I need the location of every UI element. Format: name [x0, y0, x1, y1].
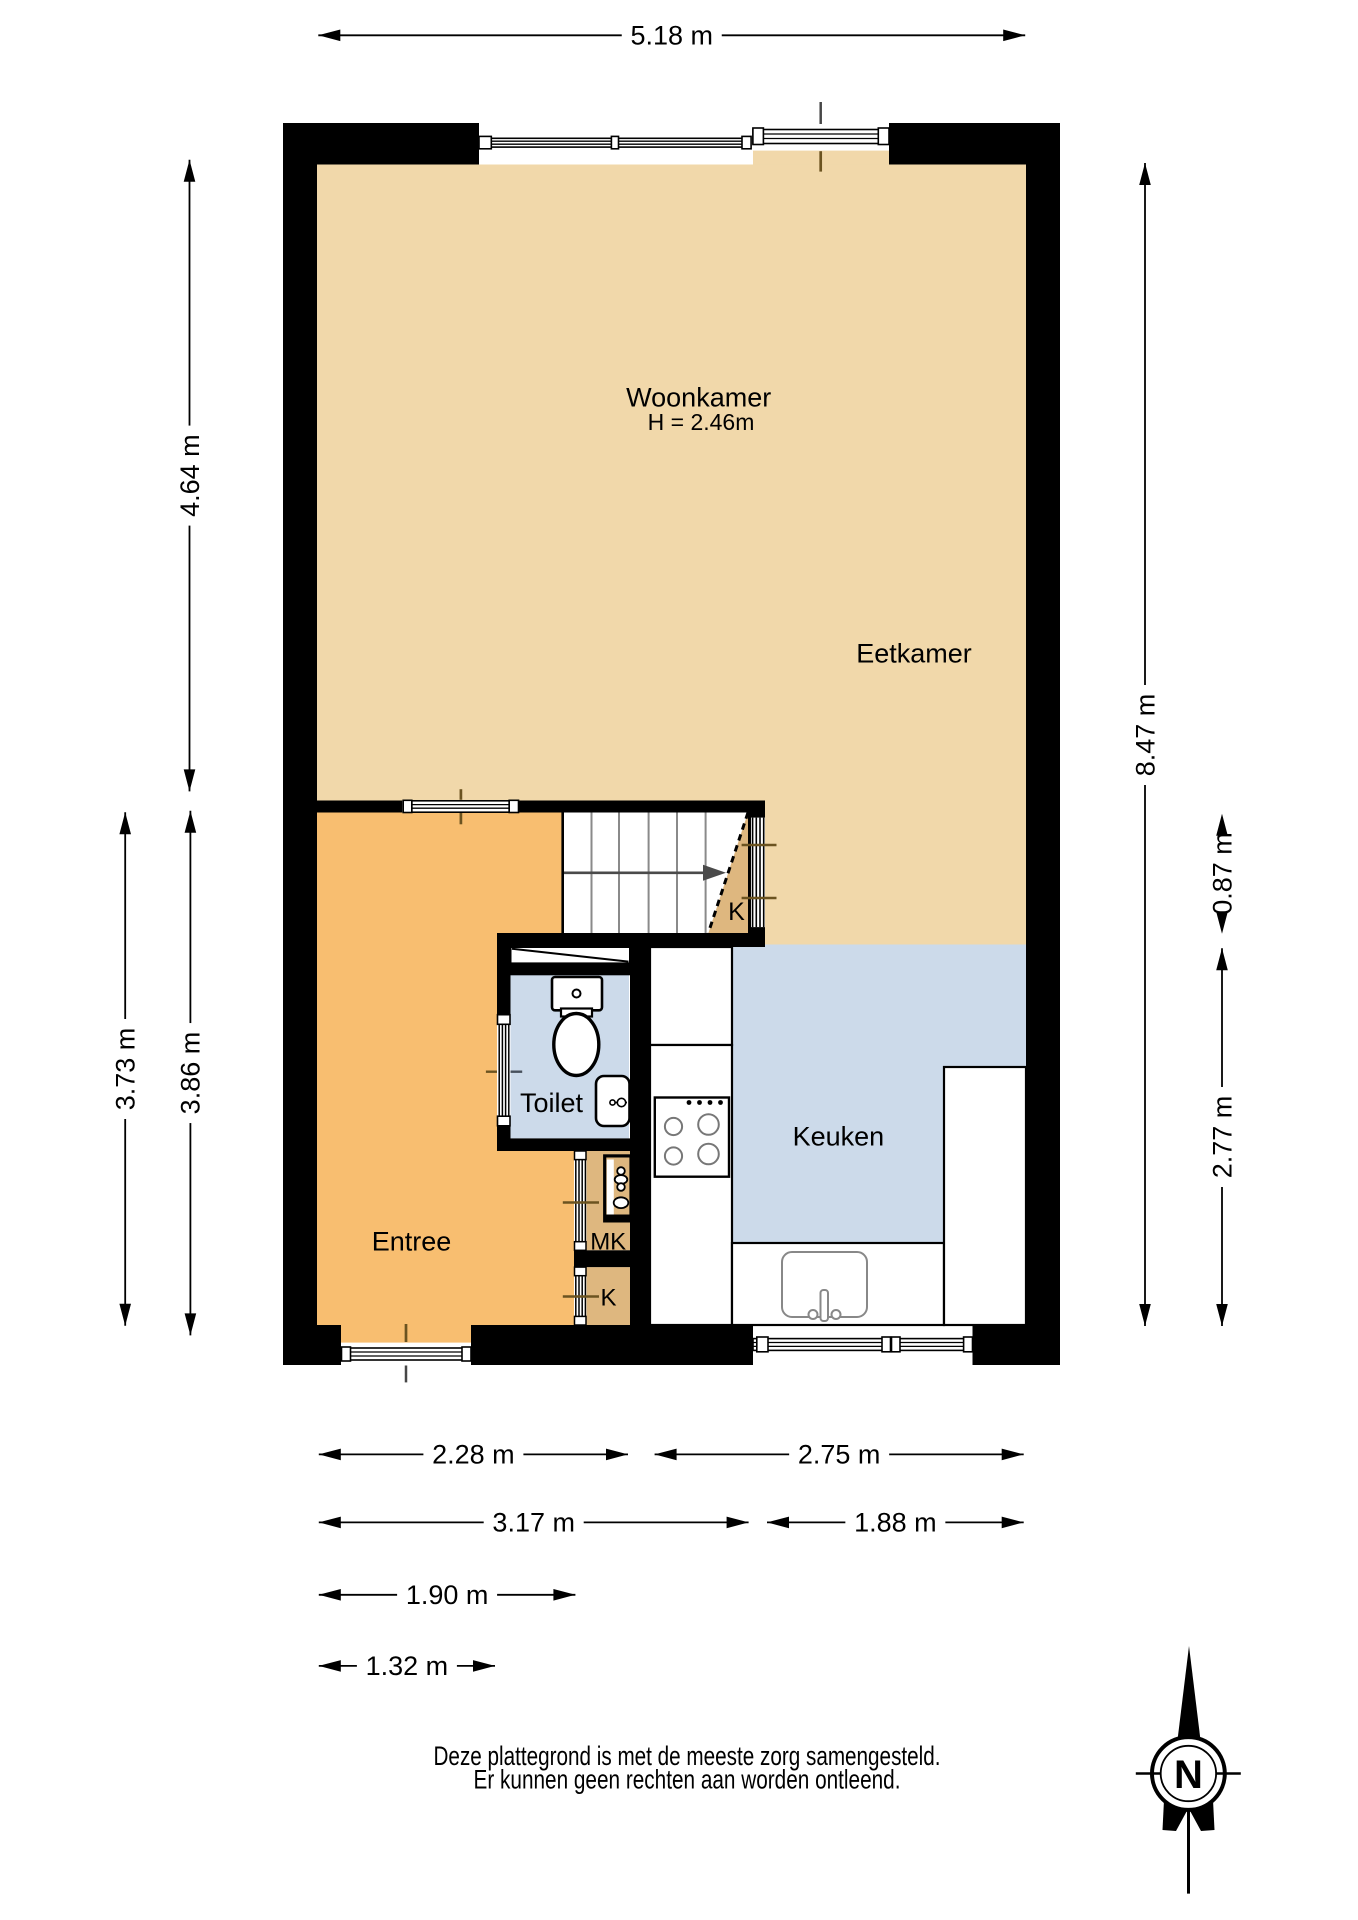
svg-text:3.73 m: 3.73 m [111, 1028, 141, 1111]
svg-text:Woonkamer: Woonkamer [626, 382, 771, 412]
svg-text:N: N [1174, 1753, 1203, 1797]
svg-text:K: K [728, 898, 745, 926]
svg-text:8.47 m: 8.47 m [1130, 694, 1160, 777]
svg-text:Toilet: Toilet [520, 1088, 584, 1118]
svg-text:Er kunnen geen rechten aan wor: Er kunnen geen rechten aan worden ontlee… [474, 1765, 901, 1795]
svg-text:Keuken: Keuken [793, 1121, 885, 1151]
svg-text:Entree: Entree [372, 1227, 452, 1257]
svg-text:MK: MK [590, 1229, 626, 1256]
svg-text:3.86 m: 3.86 m [176, 1032, 206, 1115]
svg-text:H = 2.46m: H = 2.46m [648, 409, 755, 435]
svg-text:Eetkamer: Eetkamer [856, 639, 972, 669]
svg-text:1.88 m: 1.88 m [854, 1508, 937, 1538]
svg-text:4.64 m: 4.64 m [175, 434, 205, 517]
svg-text:3.17 m: 3.17 m [492, 1508, 575, 1538]
svg-text:0.87 m: 0.87 m [1207, 832, 1237, 915]
svg-text:K: K [600, 1285, 616, 1312]
svg-text:2.28 m: 2.28 m [432, 1440, 515, 1470]
svg-text:2.77 m: 2.77 m [1207, 1096, 1237, 1179]
svg-text:5.18 m: 5.18 m [630, 21, 713, 51]
svg-text:1.32 m: 1.32 m [366, 1651, 449, 1681]
svg-text:1.90 m: 1.90 m [406, 1580, 489, 1610]
svg-text:2.75 m: 2.75 m [798, 1440, 881, 1470]
